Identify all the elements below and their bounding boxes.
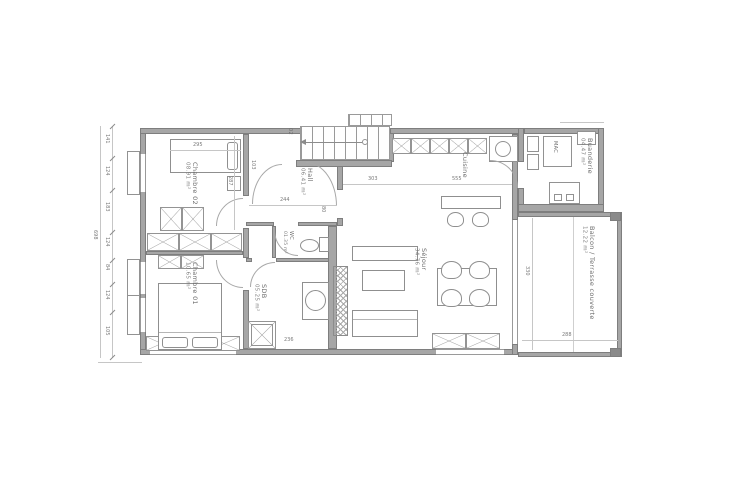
washbasin: [305, 290, 326, 311]
kitchen-island: [441, 196, 501, 209]
dim-line-sejour: [343, 184, 512, 185]
bar-stool: [447, 212, 464, 227]
kitchen-cabinet-cell: [392, 138, 411, 154]
dim-value: 124: [104, 290, 109, 300]
wall-balcony-bottom: [518, 352, 622, 357]
buanderie-shelf: [527, 154, 539, 170]
sofa-1: [352, 246, 418, 261]
stair-direction-line: [306, 142, 362, 143]
dining-chair: [469, 289, 490, 307]
room-label-chambre02: Chambre 0208.91 m²: [183, 162, 199, 205]
kitchen-sink: [495, 141, 511, 157]
dim-value: 124: [104, 166, 109, 176]
room-label-wc: WC01.35 m²: [281, 231, 294, 254]
wall-wc-sdb-a: [246, 258, 252, 262]
dim-line-ch02: [234, 136, 235, 230]
shutter-box-1: [127, 151, 140, 195]
wall-exterior-top-kitchen: [390, 128, 524, 134]
shutter-box-3: [127, 295, 140, 335]
floor-plan: 02 Cuisine MAC: [0, 0, 736, 491]
bed-blanket-line: [159, 332, 221, 333]
stairs-label: 02: [286, 128, 293, 135]
pillow: [192, 337, 218, 348]
duct-shaft: [333, 266, 348, 336]
dim-value: 295: [193, 143, 203, 148]
room-label-sejour: Séjour34.76 m²: [412, 248, 428, 275]
wall-hall-sejour-b: [337, 218, 343, 226]
room-label-chambre01: Chambre 0110.65 m²: [183, 262, 199, 305]
window-ch01-b: [140, 298, 146, 332]
washing-machine-label: MAC: [551, 141, 558, 153]
dim-value: 124: [104, 237, 109, 247]
dim-value-total: 698: [92, 230, 97, 240]
wall-hall-bottom-a: [246, 222, 274, 226]
room-label-buanderie: Buanderie04.47 m²: [578, 138, 594, 174]
wall-balcony-top: [518, 212, 622, 217]
wall-buanderie-bottom: [518, 204, 604, 212]
balcony-post-bottom: [610, 348, 621, 357]
wall-bedrooms-hall-a: [243, 134, 249, 196]
kitchen-cabinet-cell: [411, 138, 430, 154]
wardrobe-band-cell: [179, 233, 211, 251]
shutter-box-2: [127, 259, 140, 297]
window-sejour-bottom: [436, 349, 504, 355]
wardrobe-band-cell: [147, 233, 179, 251]
shower-tray: [251, 324, 273, 346]
dim-value: 80: [320, 206, 325, 212]
wall-buanderie-right: [598, 128, 604, 212]
wall-balcony-right: [617, 212, 622, 357]
wardrobe-cell: [160, 207, 182, 231]
balcony-post-top: [610, 212, 621, 221]
sofa-cushion-line: [353, 319, 417, 320]
dryer-knob: [566, 194, 574, 201]
wall-buanderie-left-a: [518, 128, 524, 162]
toilet-bowl: [300, 239, 319, 252]
buanderie-shelf: [527, 136, 539, 152]
window-ch01-a: [140, 262, 146, 294]
dim-line-balcony-h: [522, 340, 618, 341]
sofa-2: [352, 310, 418, 337]
dim-value: 105: [104, 326, 109, 336]
dim-value: 303: [368, 177, 378, 182]
radiator-sejour: [432, 333, 466, 349]
window-ch02: [140, 154, 146, 192]
door-arc-entry: [252, 164, 282, 204]
dining-chair: [441, 261, 462, 279]
dim-value: 288: [562, 333, 572, 338]
dryer-knob: [554, 194, 562, 201]
stair-arrow-icon: [300, 139, 306, 145]
staircase-upper-flight: [348, 114, 392, 126]
staircase: [300, 126, 390, 160]
room-label-sdb: SDB05.25 m²: [252, 284, 268, 311]
coffee-table: [362, 270, 405, 291]
dim-value: 103: [250, 160, 255, 170]
balcony-guideline: [573, 217, 574, 352]
wall-bedrooms-hall-b: [243, 228, 249, 258]
wardrobe-band-cell: [211, 233, 242, 251]
radiator-sejour: [466, 333, 500, 349]
dim-value: 244: [280, 198, 290, 203]
dining-chair: [469, 261, 490, 279]
wall-wc-sdb-b: [276, 258, 332, 262]
dim-value: 330: [524, 266, 529, 276]
dim-value: 287: [227, 176, 232, 186]
stair-start-dot: [362, 139, 368, 145]
door-arc-ch02: [216, 198, 243, 226]
dim-line-bottom-left: [98, 362, 142, 363]
kitchen-cabinet-cell: [468, 138, 487, 154]
pillow: [162, 337, 188, 348]
dim-value: 84: [104, 264, 109, 270]
bar-stool: [472, 212, 489, 227]
room-label-hall: Hall06.41 m²: [298, 168, 314, 195]
pillow: [227, 142, 238, 170]
dim-line-left-chain: [112, 126, 113, 358]
dim-value: 141: [104, 134, 109, 144]
kitchen-cabinet-cell: [430, 138, 449, 154]
dim-line-bed: [170, 150, 241, 151]
dim-tick: [110, 355, 116, 361]
room-label-cuisine: Cuisine: [460, 152, 469, 178]
toilet-tank: [319, 237, 329, 252]
window-sejour-balcony: [512, 220, 518, 344]
dim-value: 236: [284, 338, 294, 343]
dim-line-balcony-v: [532, 218, 533, 350]
dim-value: 555: [452, 177, 462, 182]
dim-line-top-right: [560, 122, 604, 123]
wardrobe-cell: [182, 207, 204, 231]
dim-line-left-total: [100, 126, 101, 358]
wardrobe-cell: [158, 255, 181, 269]
dining-chair: [441, 289, 462, 307]
room-label-balcon: Balcon / Terrasse couverte12.22 m²: [580, 226, 596, 320]
dim-value: 183: [104, 202, 109, 212]
